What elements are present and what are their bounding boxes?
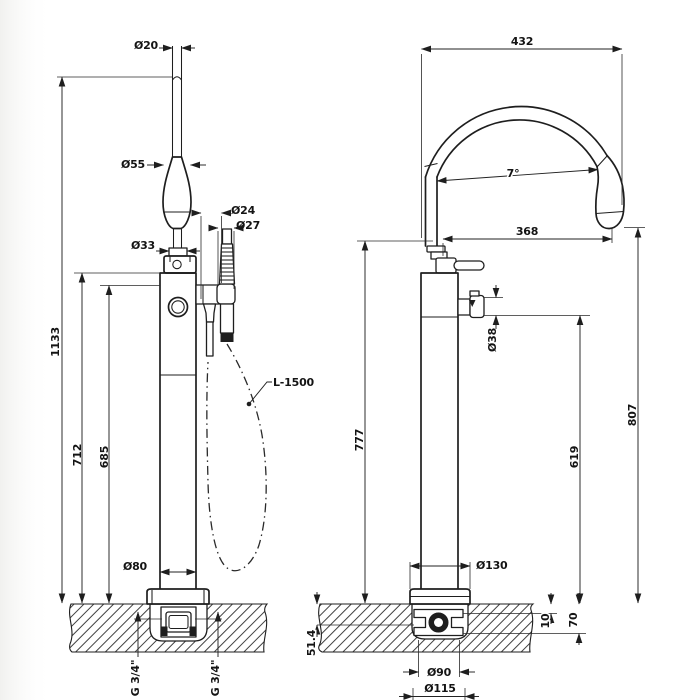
handshower-spray-face — [221, 333, 234, 342]
page-edge-shading — [0, 0, 52, 700]
dim-label-dia-floor-hole: Ø115 — [424, 682, 456, 695]
spout-outlet-teardrop — [596, 156, 624, 229]
hand-shower-assembly — [196, 229, 235, 356]
dim-label-spout-angle: 7° — [507, 167, 520, 180]
dim-label-depth-box-bottom: 70 — [567, 612, 580, 627]
dimensions-side: 432 7° 368 807 777 619 Ø38 — [305, 35, 645, 700]
spout-wand — [163, 46, 196, 273]
dim-label-hose-length: L-1500 — [273, 376, 315, 389]
outlet-nozzle — [204, 304, 216, 322]
faucet-column-side — [421, 273, 484, 592]
dim-label-height-side-port: 619 — [568, 446, 581, 468]
dim-label-depth-inlet-axis: 51.4 — [305, 629, 318, 656]
dim-label-dia-handshower: Ø27 — [236, 219, 260, 232]
dim-label-dia-spout-widest: Ø55 — [121, 158, 145, 171]
dim-label-height-spout-tip: 807 — [626, 404, 639, 426]
technical-drawing-page: Ø20 Ø55 Ø33 Ø24 Ø27 1133 7 — [0, 0, 700, 700]
faucet-column-front — [160, 273, 196, 592]
faucet-dimension-drawing: Ø20 Ø55 Ø33 Ø24 Ø27 1133 7 — [0, 0, 700, 700]
dim-label-dia-holder: Ø24 — [231, 204, 256, 217]
dim-label-height-spout-outlet: 712 — [71, 444, 84, 466]
side-port-stub — [458, 299, 470, 315]
dim-label-dia-base-plate: Ø130 — [476, 559, 508, 572]
dim-label-dia-spout-top: Ø20 — [134, 39, 159, 52]
dim-label-inlet-left: G 3/4" — [129, 660, 142, 697]
dim-label-inlet-right: G 3/4" — [209, 660, 222, 697]
dim-label-height-total: 1133 — [49, 327, 62, 357]
handle-assembly-side — [427, 246, 484, 273]
floor-section-front — [70, 589, 267, 652]
side-view: 432 7° 368 807 777 619 Ø38 — [305, 35, 645, 700]
dim-label-depth-box-top: 10 — [539, 613, 552, 628]
dim-label-dia-side-port: Ø38 — [486, 328, 499, 352]
hand-shower-hose — [207, 344, 272, 571]
dim-label-dia-rough-body: Ø90 — [427, 666, 452, 679]
handle-hub — [436, 258, 456, 273]
base-plate-front — [147, 589, 209, 604]
dim-label-height-handshower: 685 — [98, 446, 111, 468]
handshower-holder-cuff — [217, 284, 235, 304]
floor-section-side — [319, 589, 533, 652]
dim-label-dia-spout-neck: Ø33 — [131, 239, 155, 252]
dim-label-height-body: 777 — [353, 429, 366, 451]
front-view: Ø20 Ø55 Ø33 Ø24 Ø27 1133 7 — [49, 39, 315, 696]
dim-label-spout-reach: 368 — [516, 225, 538, 238]
dim-label-dia-column: Ø80 — [123, 560, 148, 573]
dim-label-spout-width: 432 — [511, 35, 533, 48]
lever-handle — [454, 261, 484, 270]
